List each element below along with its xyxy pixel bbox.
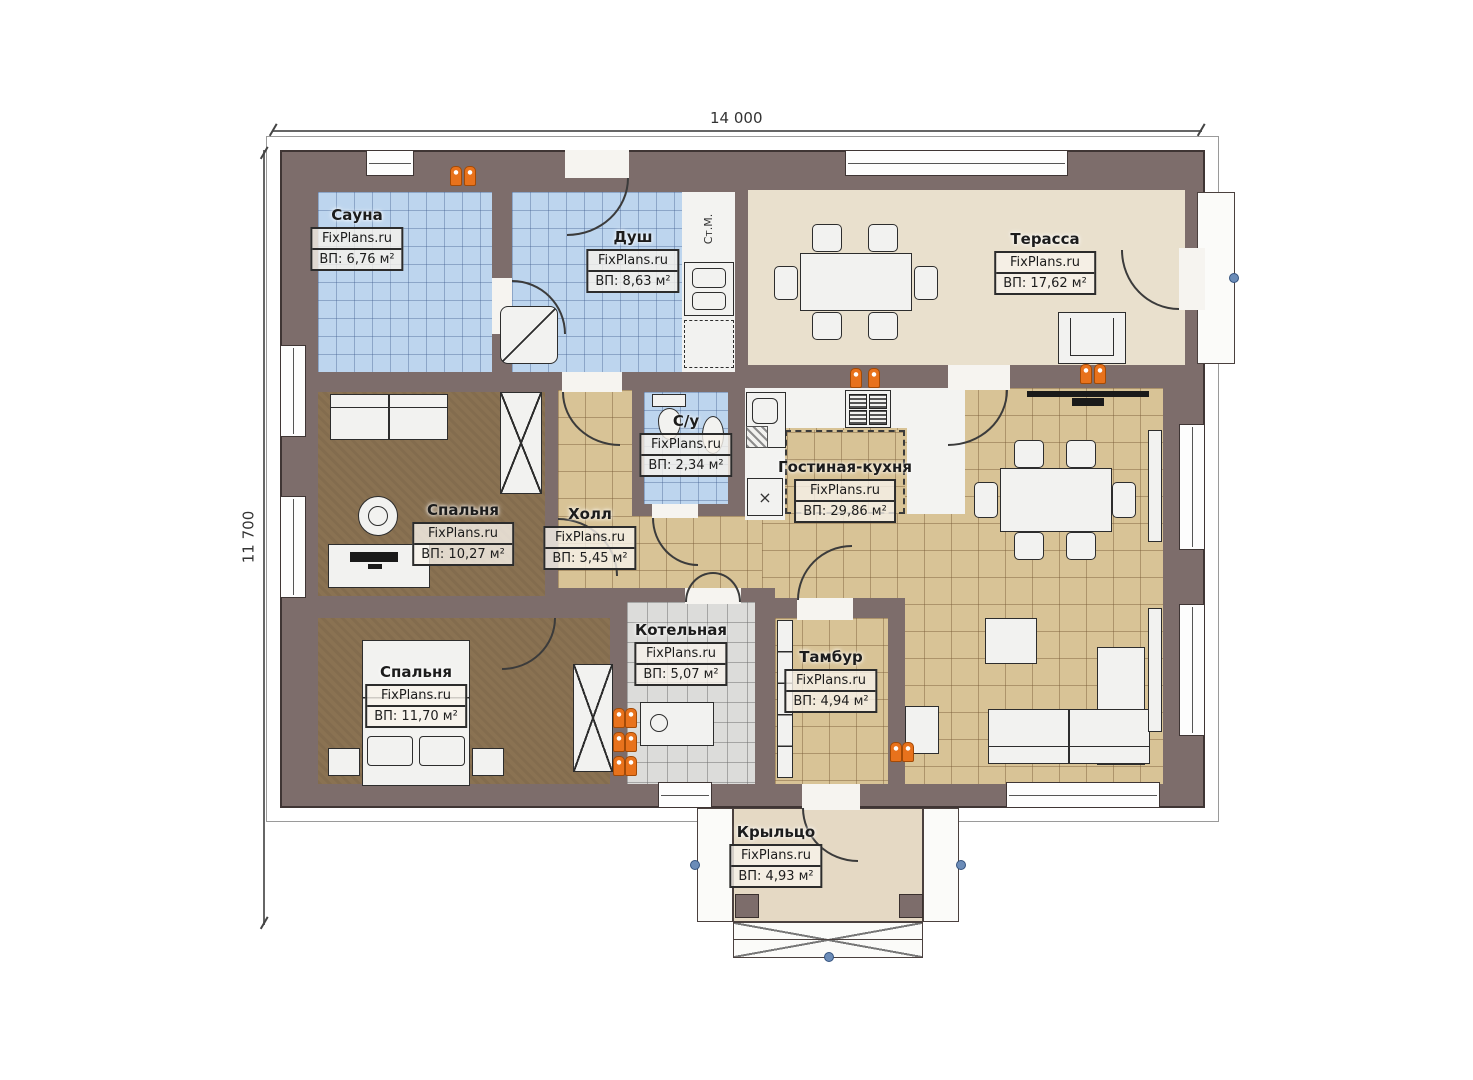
room-area: ВП: 11,70 м² bbox=[367, 705, 465, 726]
boiler-heater-icon bbox=[625, 732, 637, 752]
desk-monitor bbox=[350, 552, 398, 562]
nightstand bbox=[328, 748, 360, 776]
room-area: ВП: 4,94 м² bbox=[786, 690, 875, 711]
terrace-chair bbox=[812, 224, 842, 252]
window-sauna bbox=[366, 150, 414, 176]
axis-marker bbox=[690, 860, 700, 870]
watermark: FixPlans.ru bbox=[636, 644, 725, 663]
toilet-tank bbox=[652, 394, 686, 407]
bed-pillow bbox=[367, 736, 413, 766]
bedroom2-wardrobe bbox=[573, 664, 613, 772]
room-name: Терасса bbox=[994, 230, 1096, 248]
dining-table bbox=[1000, 468, 1112, 532]
bedroom1-wardrobe bbox=[500, 392, 542, 494]
dining-chair bbox=[974, 482, 998, 518]
room-label-terrace: Терасса FixPlans.ruВП: 17,62 м² bbox=[994, 230, 1096, 295]
door-opening-wc bbox=[652, 504, 698, 518]
room-label-bedroom1: Спальня FixPlans.ruВП: 10,27 м² bbox=[412, 501, 514, 566]
bed-pillow bbox=[419, 736, 465, 766]
coffee-table bbox=[985, 618, 1037, 664]
room-name: Гостиная-кухня bbox=[778, 458, 912, 476]
room-name: Тамбур bbox=[784, 648, 877, 666]
room-label-bedroom2: Спальня FixPlans.ruВП: 11,70 м² bbox=[365, 663, 467, 728]
room-area: ВП: 5,45 м² bbox=[545, 547, 634, 568]
door-opening-entrance bbox=[802, 784, 860, 810]
watermark: FixPlans.ru bbox=[545, 528, 634, 547]
window-terrace bbox=[845, 150, 1068, 176]
vestibule-heater-icon bbox=[890, 742, 902, 762]
room-name: Спальня bbox=[412, 501, 514, 519]
shower-tray bbox=[500, 306, 558, 364]
room-area: ВП: 8,63 м² bbox=[588, 270, 677, 291]
room-label-vestibule: Тамбур FixPlans.ruВП: 4,94 м² bbox=[784, 648, 877, 713]
terrace-chair bbox=[868, 312, 898, 340]
dimension-height-label: 11 700 bbox=[239, 511, 257, 564]
dimension-line-top bbox=[272, 130, 1202, 132]
tv-stand bbox=[1072, 398, 1104, 406]
room-name: Душ bbox=[586, 228, 679, 246]
bathroom-cabinet bbox=[684, 320, 734, 368]
room-area: ВП: 2,34 м² bbox=[641, 454, 730, 475]
terrace-table bbox=[800, 253, 912, 311]
terrace-chair bbox=[868, 224, 898, 252]
room-area: ВП: 6,76 м² bbox=[312, 248, 401, 269]
window-bedroom2 bbox=[280, 496, 306, 598]
stove-burner bbox=[869, 394, 887, 409]
dining-chair bbox=[1014, 532, 1044, 560]
axis-marker bbox=[1229, 273, 1239, 283]
kitchen-heater-icon bbox=[868, 368, 880, 388]
dining-chair bbox=[1066, 440, 1096, 468]
boiler-heater-icon bbox=[613, 708, 625, 728]
window-living-2 bbox=[1179, 604, 1205, 736]
watermark: FixPlans.ru bbox=[996, 253, 1094, 272]
radiator bbox=[1148, 608, 1162, 732]
boiler-heater-icon bbox=[625, 708, 637, 728]
dining-chair bbox=[1066, 532, 1096, 560]
watermark: FixPlans.ru bbox=[367, 686, 465, 705]
boiler-heater-icon bbox=[625, 756, 637, 776]
door-opening-vestibule bbox=[797, 598, 853, 620]
sauna-heater-icon bbox=[450, 166, 462, 186]
desk-monitor-stand bbox=[368, 564, 382, 569]
sauna-heater-icon bbox=[464, 166, 476, 186]
dining-chair bbox=[1014, 440, 1044, 468]
sink-bowl bbox=[692, 292, 726, 310]
porch-column bbox=[899, 894, 923, 918]
room-area: ВП: 17,62 м² bbox=[996, 272, 1094, 293]
watermark: FixPlans.ru bbox=[786, 671, 875, 690]
living-heater-icon bbox=[1094, 364, 1106, 384]
dining-chair bbox=[1112, 482, 1136, 518]
room-name: Холл bbox=[543, 505, 636, 523]
kitchen-heater-icon bbox=[850, 368, 862, 388]
room-label-sauna: Сауна FixPlans.ruВП: 6,76 м² bbox=[310, 206, 403, 271]
terrace-chair bbox=[774, 266, 798, 300]
radiator bbox=[1148, 430, 1162, 542]
living-heater-icon bbox=[1080, 364, 1092, 384]
room-area: ВП: 4,93 м² bbox=[731, 865, 820, 886]
window-living-1 bbox=[1179, 424, 1205, 550]
stove-burner bbox=[849, 394, 867, 409]
room-area: ВП: 29,86 м² bbox=[796, 500, 894, 521]
room-label-living-kitchen: Гостиная-кухня FixPlans.ruВП: 29,86 м² bbox=[778, 458, 912, 523]
boiler-heater-icon bbox=[613, 756, 625, 776]
terrace-chair bbox=[914, 266, 938, 300]
door-opening-hall-top bbox=[562, 372, 622, 392]
bedroom1-sofa bbox=[330, 394, 448, 440]
watermark: FixPlans.ru bbox=[731, 846, 820, 865]
room-name: Котельная bbox=[634, 621, 727, 639]
room-label-boiler: Котельная FixPlans.ruВП: 5,07 м² bbox=[634, 621, 727, 686]
door-opening-shower-entry bbox=[565, 150, 629, 178]
washing-machine-label: Ст.М. bbox=[679, 205, 737, 253]
sink-bowl bbox=[692, 268, 726, 288]
room-label-wc: С/у FixPlans.ruВП: 2,34 м² bbox=[639, 412, 732, 477]
watermark: FixPlans.ru bbox=[312, 229, 401, 248]
room-name: Спальня bbox=[365, 663, 467, 681]
porch-side-left bbox=[697, 808, 733, 922]
window-living-bottom bbox=[1006, 782, 1160, 808]
room-name: Крыльцо bbox=[729, 823, 822, 841]
tv-screen bbox=[1027, 391, 1149, 397]
axis-marker bbox=[824, 952, 834, 962]
kitchen-sink bbox=[752, 398, 778, 424]
room-label-porch: Крыльцо FixPlans.ruВП: 4,93 м² bbox=[729, 823, 822, 888]
kitchen-corner-hatch bbox=[746, 426, 768, 448]
door-opening-terrace-side bbox=[1179, 248, 1205, 310]
door-opening-terrace-living bbox=[948, 365, 1010, 390]
room-area: ВП: 5,07 м² bbox=[636, 663, 725, 684]
terrace-chair bbox=[812, 312, 842, 340]
floor-plan-canvas: 14 000 11 700 bbox=[0, 0, 1473, 1080]
room-label-hall: Холл FixPlans.ruВП: 5,45 м² bbox=[543, 505, 636, 570]
terrace-armchair-back bbox=[1070, 318, 1114, 356]
porch-side-right bbox=[923, 808, 959, 922]
window-bedroom1 bbox=[280, 345, 306, 437]
boiler-dial bbox=[650, 714, 668, 732]
stove-burner bbox=[869, 410, 887, 425]
boiler-heater-icon bbox=[613, 732, 625, 752]
watermark: FixPlans.ru bbox=[588, 251, 677, 270]
nightstand bbox=[472, 748, 504, 776]
room-area: ВП: 10,27 м² bbox=[414, 543, 512, 564]
window-boiler bbox=[658, 782, 712, 808]
axis-marker bbox=[956, 860, 966, 870]
vestibule-heater-icon bbox=[902, 742, 914, 762]
watermark: FixPlans.ru bbox=[414, 524, 512, 543]
room-name: Сауна bbox=[310, 206, 403, 224]
watermark: FixPlans.ru bbox=[641, 435, 730, 454]
room-label-shower: Душ FixPlans.ruВП: 8,63 м² bbox=[586, 228, 679, 293]
sofa-seat bbox=[988, 709, 1150, 764]
dimension-line-left bbox=[263, 150, 265, 925]
dimension-width-label: 14 000 bbox=[710, 109, 763, 127]
potted-plant-inner bbox=[368, 506, 388, 526]
stove-burner bbox=[849, 410, 867, 425]
room-name: С/у bbox=[639, 412, 732, 430]
watermark: FixPlans.ru bbox=[796, 481, 894, 500]
porch-column bbox=[735, 894, 759, 918]
